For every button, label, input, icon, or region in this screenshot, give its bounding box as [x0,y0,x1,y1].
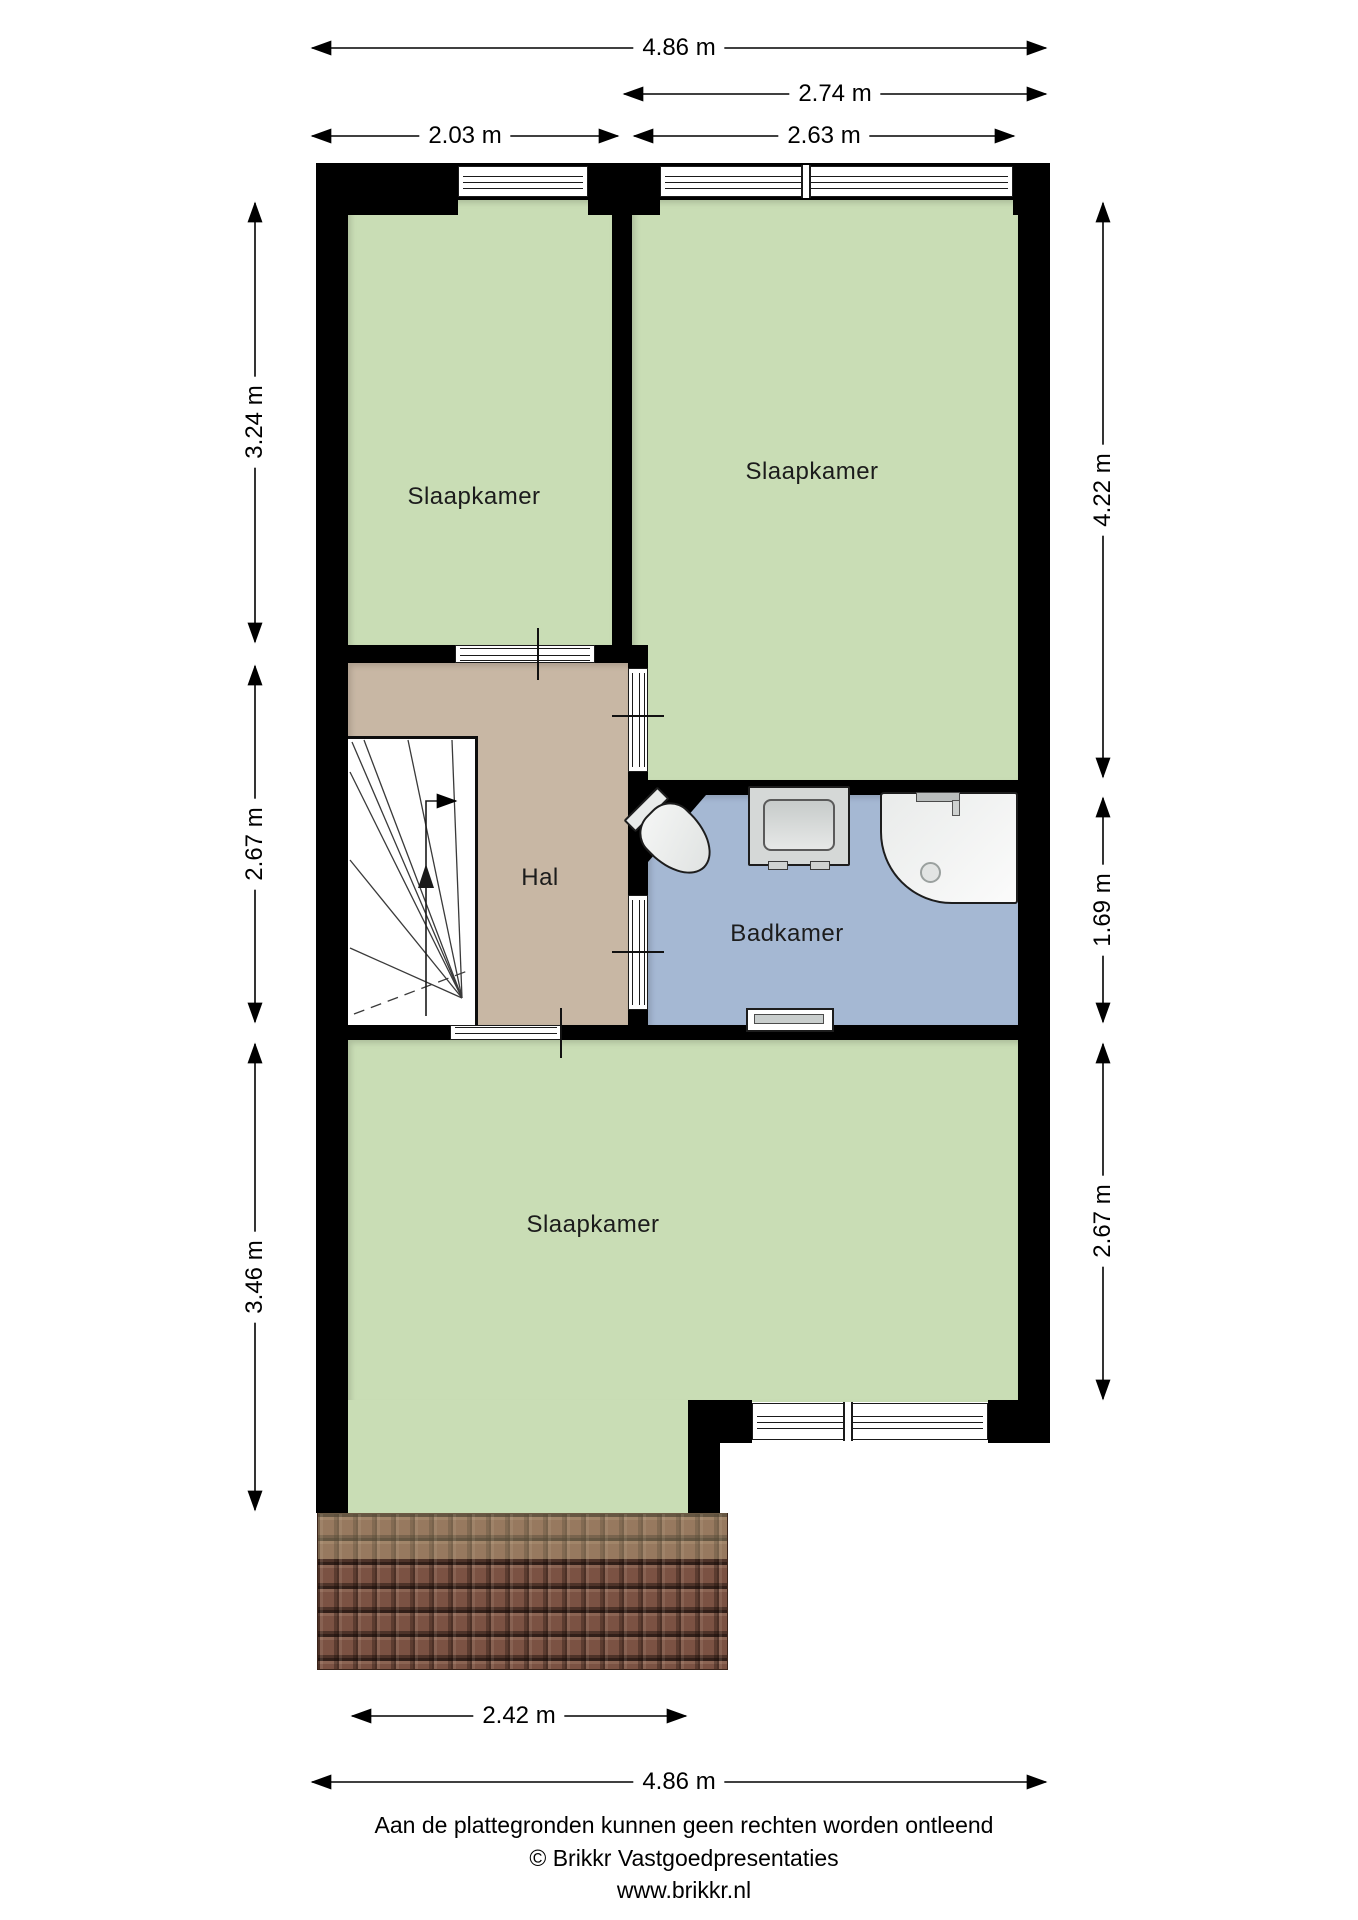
dim-top-right: 2.74 m [789,81,880,107]
dim-right-middle: 1.69 m [1090,864,1116,955]
sink [748,786,850,866]
sink-foot [768,861,788,870]
door-leaf [632,673,645,767]
dim-top-right-inner: 2.63 m [778,123,869,149]
door-hall-bedroom2 [628,668,648,772]
radiator [746,1008,834,1032]
room-bedroom-bottom-left-ext [348,1400,688,1513]
door-tick [560,1008,562,1058]
roof-tiles-light-row [318,1513,727,1559]
label-bedroom-top-right: Slaapkamer [745,458,878,486]
door-hall-bedroom-bottom [450,1025,562,1040]
label-bedroom-top-left: Slaapkamer [407,483,540,511]
radiator-inner [754,1014,824,1024]
door-leaf [455,1027,557,1040]
window-bedroom2-top [660,166,1013,197]
wall-notch-corner [688,1400,752,1443]
door-tick [612,715,664,717]
shower-faucet-handle [952,800,960,816]
door-leaf [460,648,590,661]
dim-top-total: 4.86 m [633,35,724,61]
room-bedroom-top-left [348,200,612,645]
wall-left [316,163,348,1513]
window-bedroom1-top [458,166,588,197]
sink-basin [763,799,835,851]
footer-copyright: © Brikkr Vastgoedpresentaties [529,1845,838,1872]
door-tick [612,951,664,953]
dim-bottom-inner: 2.42 m [473,1703,564,1729]
wall-right [1018,163,1050,1443]
window-mullion [843,1402,853,1441]
door-bedroom1-hall [455,645,595,663]
label-bedroom-bottom: Slaapkamer [526,1211,659,1239]
sink-foot [810,861,830,870]
footer-website: www.brikkr.nl [617,1877,751,1904]
door-tick [537,628,539,680]
window-glass [665,176,1008,189]
dim-top-left-inner: 2.03 m [419,123,510,149]
staircase [348,736,478,1025]
wall-bottom-right-corner [988,1400,1050,1443]
wall-notch-vertical [688,1443,720,1513]
room-bedroom-top-right [632,200,1018,780]
dim-bottom-total: 4.86 m [633,1769,724,1795]
room-bedroom-bottom-main [348,1040,1018,1402]
floorplan-canvas: Slaapkamer Slaapkamer Hal Badkamer Slaap… [0,0,1358,1920]
shower-drain [920,862,941,883]
dim-right-bottom: 2.67 m [1090,1175,1116,1266]
dim-left-top: 3.24 m [242,376,268,467]
window-mullion [801,165,811,198]
label-hall: Hal [521,864,559,892]
dim-left-bottom: 3.46 m [242,1231,268,1322]
dim-right-top: 4.22 m [1090,444,1116,535]
dim-left-middle: 2.67 m [242,798,268,889]
window-glass [757,1416,983,1429]
footer-disclaimer: Aan de plattegronden kunnen geen rechten… [375,1812,994,1839]
window-glass [463,176,583,189]
window-bedroom-bottom [752,1403,988,1440]
wall-middle-bottom-band [348,1025,1018,1040]
label-bathroom: Badkamer [730,920,843,948]
wall-divider-bedrooms [612,200,632,663]
